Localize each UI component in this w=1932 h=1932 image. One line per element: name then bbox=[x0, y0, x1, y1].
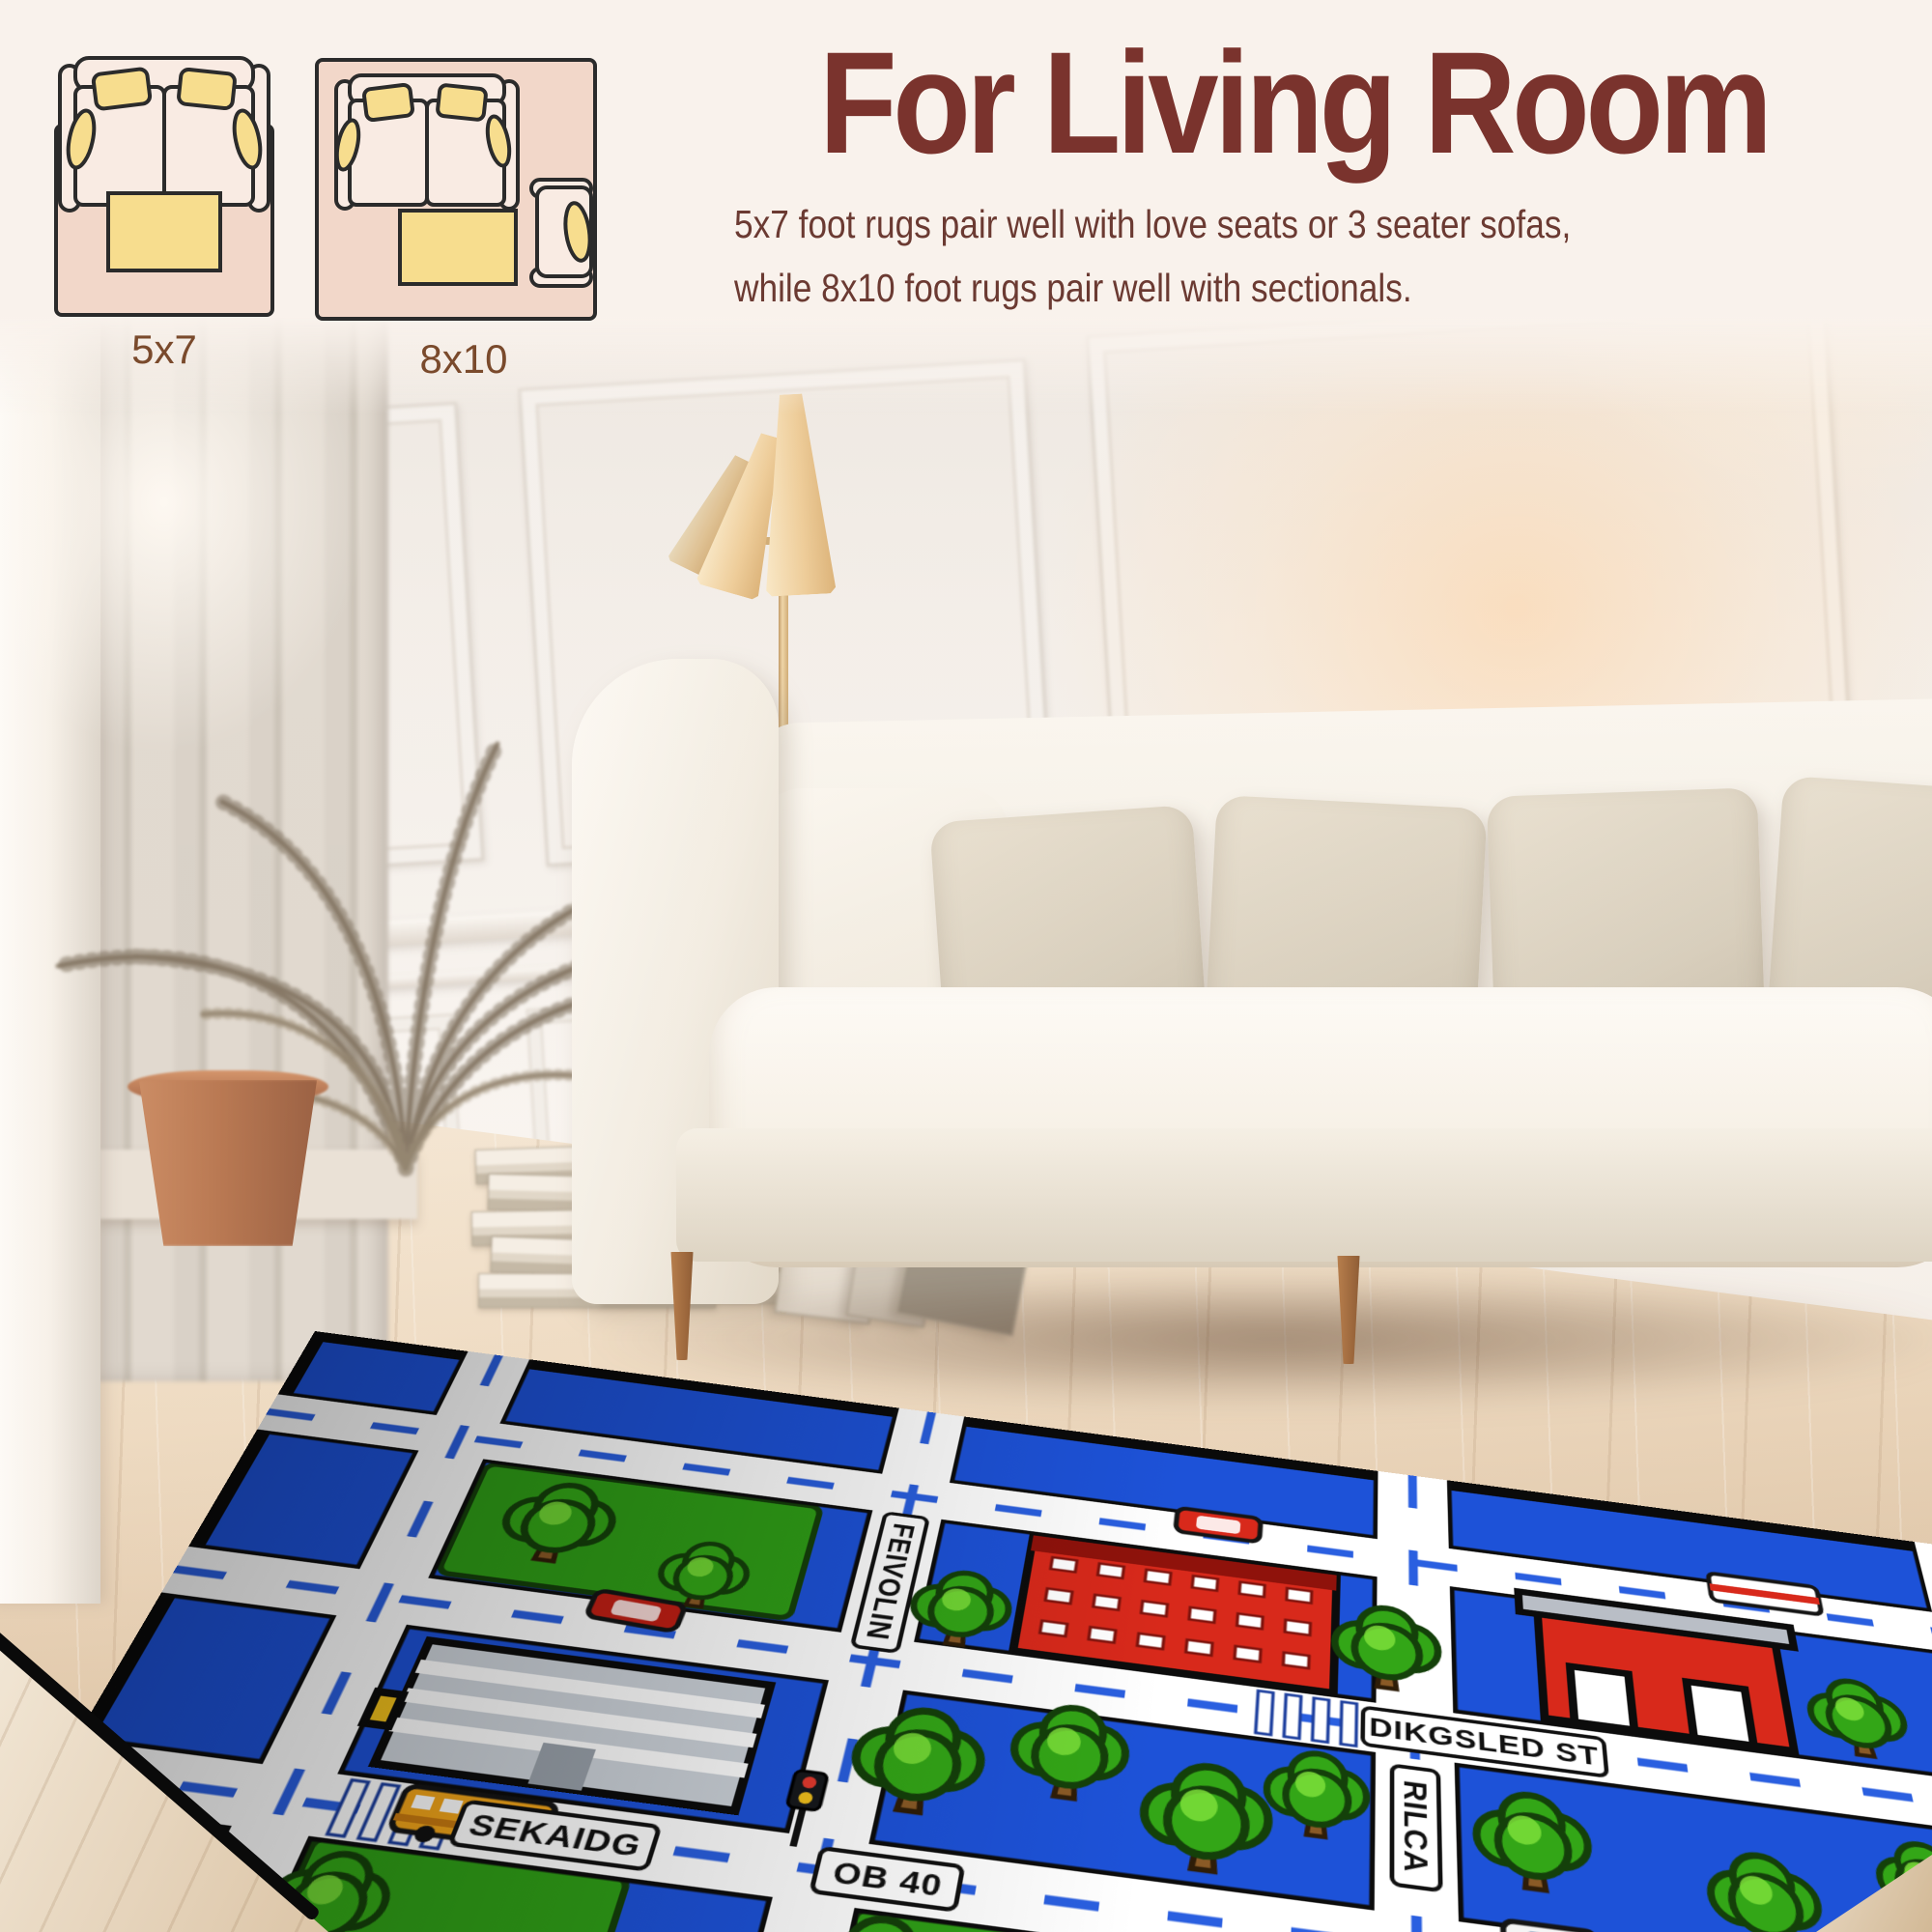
coffee-table-top-view bbox=[108, 193, 220, 270]
size-guide-header: 5x7 8x10 For Living Room 5x7 foot rugs p… bbox=[0, 0, 1932, 415]
rug-diagram-8x10 bbox=[311, 35, 601, 329]
rug-shading bbox=[0, 1331, 1932, 1932]
diagram-label-8x10: 8x10 bbox=[338, 336, 589, 383]
sofa-top-view bbox=[333, 75, 518, 209]
page-title: For Living Room bbox=[819, 21, 1839, 184]
rug-diagram-5x7 bbox=[48, 50, 280, 326]
size-guide-description: 5x7 foot rugs pair well with love seats … bbox=[734, 193, 1615, 320]
city-play-rug: DIKGSLED ST SEKAIDG OB 40 BOB CATOE IVEI… bbox=[0, 1331, 1932, 1932]
coffee-table-top-view bbox=[400, 211, 516, 284]
rug-artwork: DIKGSLED ST SEKAIDG OB 40 BOB CATOE IVEI… bbox=[0, 1331, 1932, 1932]
diagram-label-5x7: 5x7 bbox=[58, 327, 270, 373]
sofa-top-view bbox=[60, 58, 269, 211]
armchair-top-view bbox=[531, 180, 593, 286]
